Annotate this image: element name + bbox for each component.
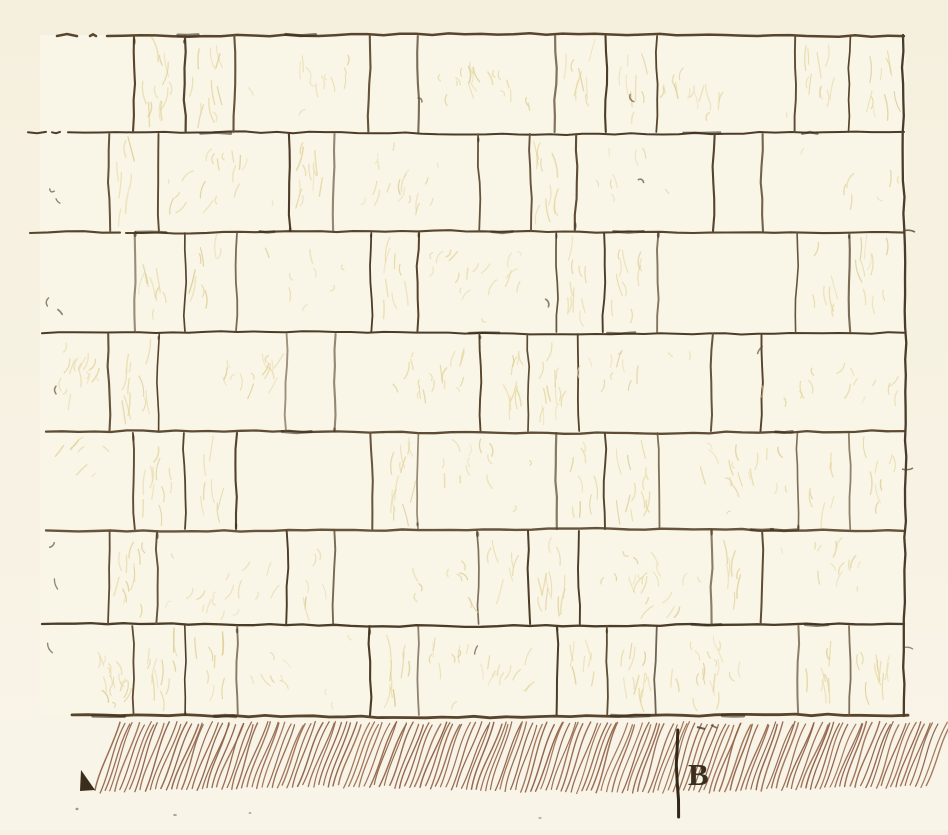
- svg-text:B: B: [688, 757, 709, 792]
